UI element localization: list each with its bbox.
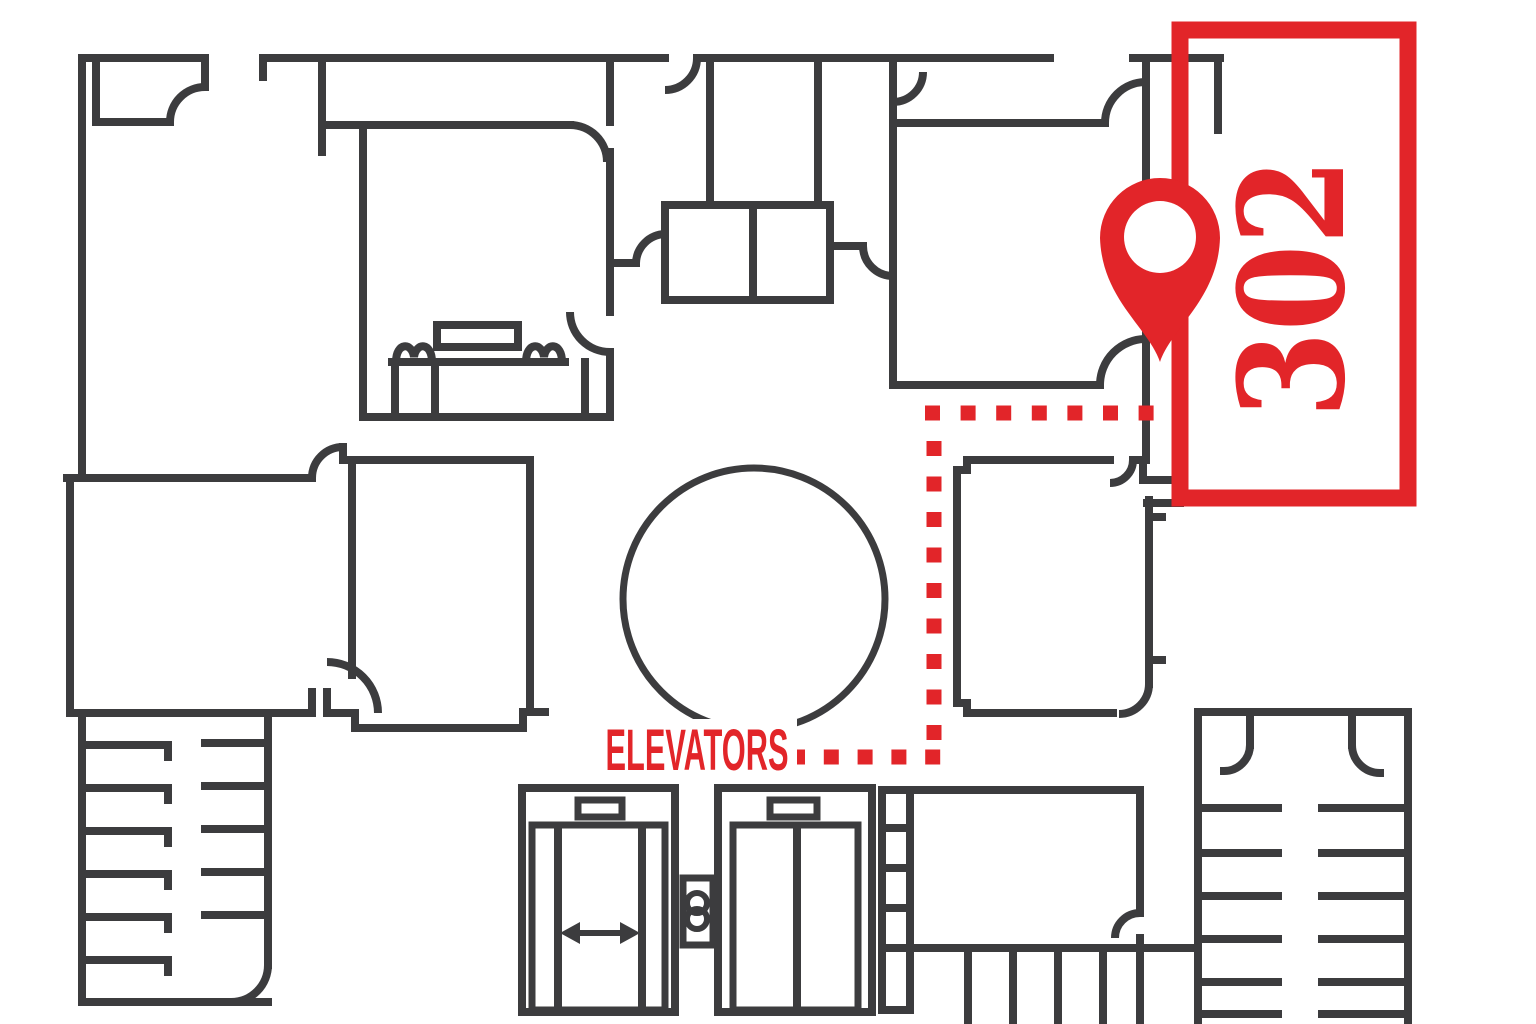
door-swing-arcs <box>170 58 1149 938</box>
counter-table <box>437 325 518 347</box>
room-302-label: 302 <box>1208 158 1378 418</box>
location-pin-icon[interactable] <box>1100 178 1220 362</box>
elevator-call-buttons-icon <box>683 878 713 945</box>
rotunda-circle <box>623 468 885 730</box>
stairs-icon <box>82 713 268 1002</box>
utility-lockers <box>882 790 910 1010</box>
route-dotted-path <box>790 413 1154 757</box>
elevator-closed-door-icon <box>718 788 872 1012</box>
floor-plan-map: ELEVATORS 302 <box>0 0 1536 1024</box>
stairs-icon <box>1198 712 1408 1020</box>
elevators-label: ELEVATORS <box>606 718 789 783</box>
elevator-open-door-icon <box>522 788 675 1012</box>
